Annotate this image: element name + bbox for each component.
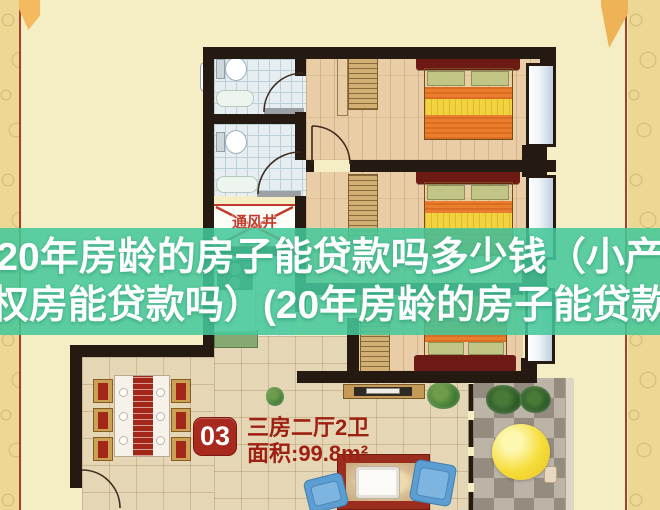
toilet-1-icon: [225, 57, 247, 81]
wall: [207, 47, 556, 59]
dining-table: [114, 375, 170, 457]
wall: [522, 145, 547, 177]
title-line-1: 20年房龄的房子能贷款吗多少钱（小产: [0, 234, 660, 282]
toilet-2-icon: [225, 130, 247, 154]
bathroom-2-basin: [216, 176, 258, 193]
wall: [295, 112, 306, 160]
toilet-2-tank: [216, 132, 225, 152]
dining-chair: [171, 408, 191, 432]
wall: [306, 160, 314, 172]
balcony-edge: [565, 378, 574, 510]
wall: [297, 371, 535, 383]
bathroom-1-basin: [216, 90, 254, 107]
wall: [295, 47, 306, 76]
unit-type-label: 三房二厅2卫: [247, 415, 369, 441]
dining-chair: [171, 379, 191, 403]
dining-chair: [93, 437, 113, 461]
window-bedroom-1: [526, 63, 556, 147]
bedroom-1-desk: [337, 52, 348, 116]
parasol-icon: [492, 424, 550, 480]
plant-icon: [427, 382, 460, 409]
wall: [70, 345, 82, 488]
plant-icon: [266, 387, 284, 406]
title-line-2: 权房能贷款吗）(20年房龄的房子能贷款: [0, 282, 660, 330]
dining-chair: [171, 437, 191, 461]
wall: [214, 114, 306, 124]
coffee-table: [355, 466, 400, 499]
bed-1: [424, 68, 513, 140]
toilet-1-tank: [216, 59, 225, 79]
dining-chair: [93, 379, 113, 403]
balcony-chair: [544, 466, 557, 483]
armchair-right: [409, 459, 458, 508]
tv-screen: [366, 388, 400, 394]
unit-number-badge: 03: [193, 417, 237, 456]
title-overlay-band: 20年房龄的房子能贷款吗多少钱（小产 权房能贷款吗）(20年房龄的房子能贷款: [0, 228, 660, 335]
plant-icon: [520, 386, 551, 413]
plant-icon: [486, 385, 522, 414]
unit-area-label: 面积:99.8m²: [247, 441, 368, 467]
dining-chair: [93, 408, 113, 432]
bed-3-headboard: [414, 355, 516, 372]
article-thumbnail: 通风井 03 三房二厅2卫 面积:99.8m² 20年房龄的房子能贷款吗多少钱（…: [0, 0, 660, 510]
dining-chairs-right: [171, 379, 191, 461]
wall: [70, 345, 214, 357]
dining-chairs-left: [93, 379, 113, 461]
bedroom-1-wardrobe: [348, 52, 378, 110]
